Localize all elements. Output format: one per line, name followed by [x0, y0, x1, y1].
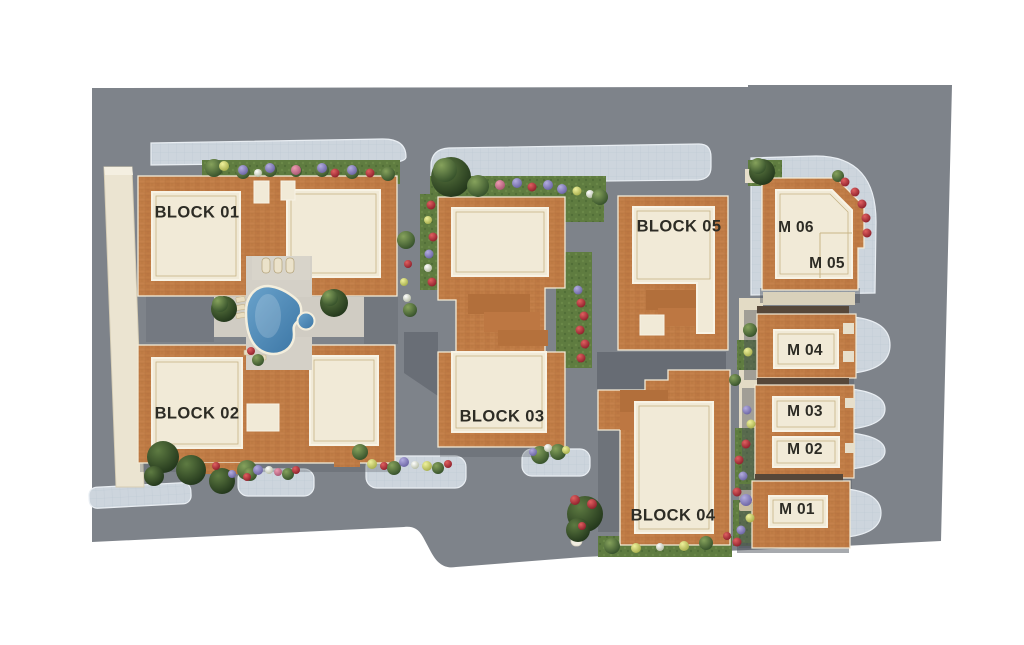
block-03-label: BLOCK 03: [460, 408, 545, 427]
villa-m03-m02-building: [755, 378, 855, 478]
site-plan-rendering: [0, 0, 1024, 645]
villa-m06-m05-building: [745, 169, 864, 305]
block-05-label: BLOCK 05: [637, 218, 722, 237]
block-04-label: BLOCK 04: [631, 507, 716, 526]
villa-m01-label: M 01: [779, 501, 815, 519]
villa-m06-label: M 06: [778, 219, 814, 237]
villa-m05-label: M 05: [809, 255, 845, 273]
site-plan: BLOCK 01 BLOCK 02 BLOCK 03 BLOCK 04 BLOC…: [0, 0, 1024, 645]
swimming-pool: [246, 286, 301, 354]
villa-m04-label: M 04: [787, 342, 823, 360]
block-02-label: BLOCK 02: [155, 405, 240, 424]
spa-pool: [298, 313, 315, 330]
villa-m02-label: M 02: [787, 441, 823, 459]
villa-m03-label: M 03: [787, 403, 823, 421]
block-01-label: BLOCK 01: [155, 204, 240, 223]
